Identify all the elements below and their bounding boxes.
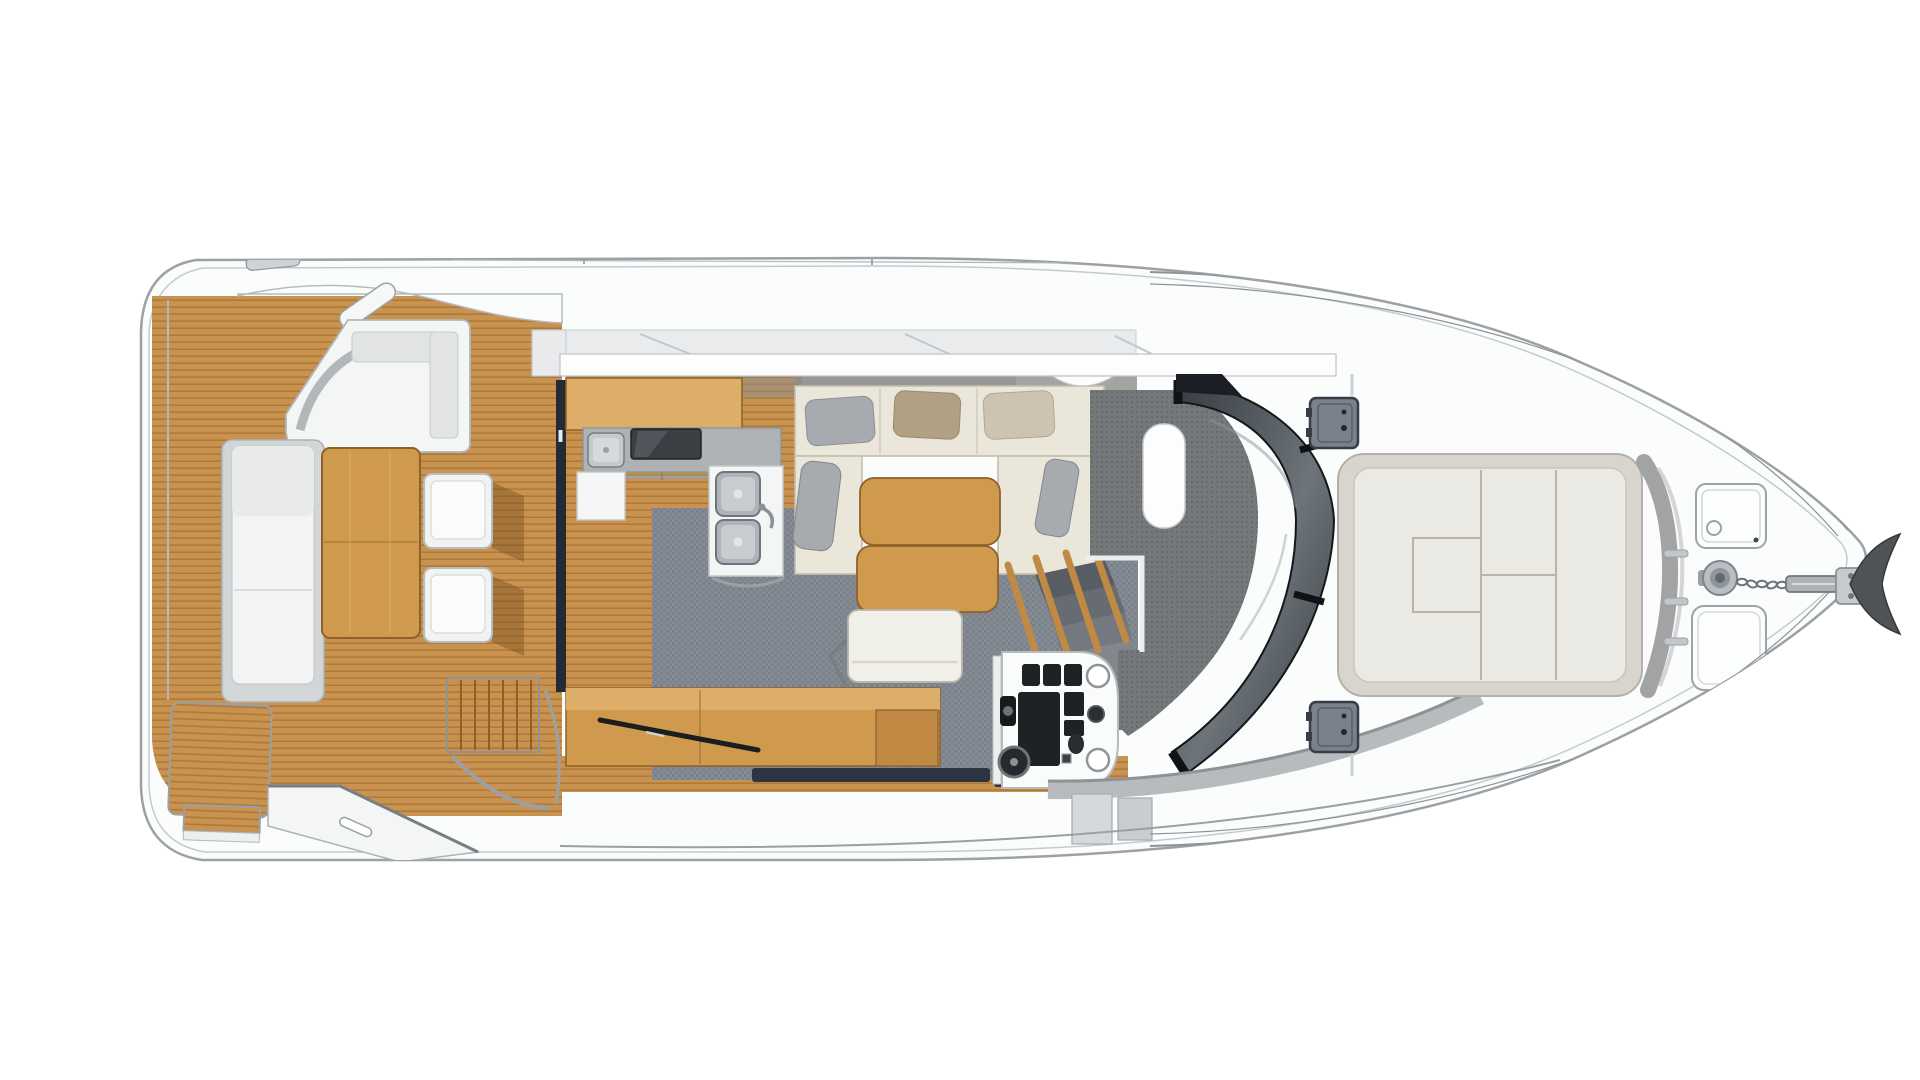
hardtop-leading-edge xyxy=(560,354,1336,376)
double-sink-unit xyxy=(709,466,784,586)
pillow-grey-back xyxy=(805,396,876,447)
swim-platform xyxy=(167,702,272,842)
mfd-screen-2 xyxy=(1043,664,1061,686)
door-handle xyxy=(559,430,563,442)
deck-plan-svg xyxy=(0,0,1920,1080)
bow-hatch-forward xyxy=(1696,484,1766,548)
salon-table xyxy=(857,478,1000,612)
bow-sun-pad xyxy=(1338,454,1682,696)
sun-lounger xyxy=(222,440,324,702)
bench-cushion-right xyxy=(430,332,458,438)
pillow-tan-back xyxy=(893,390,961,439)
sideboard xyxy=(566,688,940,766)
dial-gauge-top xyxy=(1087,665,1109,687)
swim-platform-step xyxy=(184,805,261,834)
gunwale-step-2 xyxy=(1118,798,1152,840)
salon-door-bulkhead xyxy=(556,380,566,692)
galley-upper-cabinet xyxy=(566,378,742,430)
mfd-screen-3 xyxy=(1064,664,1082,686)
roof-rail-1 xyxy=(452,252,1318,256)
gunwale-step-1 xyxy=(1072,794,1112,844)
dial-gauge-bottom xyxy=(1087,749,1109,771)
mfd-screen-1 xyxy=(1022,664,1040,686)
galley-sink xyxy=(588,433,624,467)
helm-console xyxy=(993,652,1118,788)
pillow-beige-back xyxy=(983,390,1055,440)
deck-content xyxy=(152,252,1848,862)
chair-shadow xyxy=(492,482,524,562)
deck-clip-1 xyxy=(1664,550,1688,557)
chair-shadow xyxy=(492,576,524,656)
galley-lower-cabinet xyxy=(577,472,625,520)
dashboard-storage-slot xyxy=(1143,424,1185,528)
window-sill-strip-1 xyxy=(752,768,990,782)
instrument-panel-small-2 xyxy=(1064,720,1084,736)
instrument-panel-small-1 xyxy=(1064,692,1084,716)
deck-clip-2 xyxy=(1664,598,1688,605)
joystick xyxy=(1068,734,1084,754)
cooktop xyxy=(631,429,701,459)
yacht-floor-plan xyxy=(0,0,1920,1080)
lounger-backrest xyxy=(232,446,314,516)
bow-hatch-aft xyxy=(1692,606,1766,690)
sideboard-step xyxy=(876,710,938,766)
compass-knob xyxy=(1088,706,1104,722)
deck-clip-3 xyxy=(1664,638,1688,645)
cockpit-table xyxy=(322,448,420,638)
ignition-button xyxy=(1062,754,1071,763)
